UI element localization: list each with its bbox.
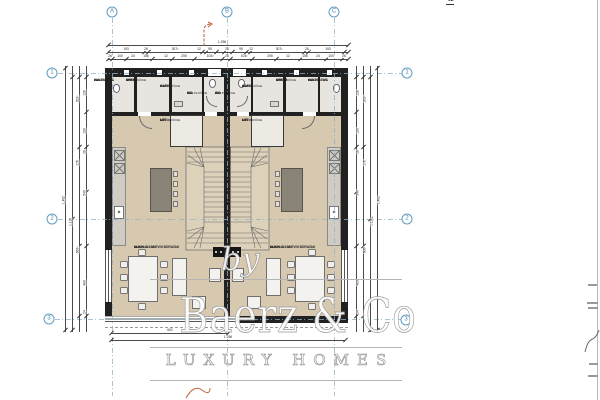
chair <box>287 274 295 281</box>
dimension-label: 12 <box>164 55 169 58</box>
dimension-label: 202² <box>363 95 366 103</box>
title-block-fragment <box>588 375 598 377</box>
sink-icon <box>114 206 124 219</box>
kitchen-counter-left <box>112 147 126 246</box>
dimension-label: 193 <box>325 48 332 51</box>
cooktop-icon <box>114 150 125 161</box>
dimension-label: 480 <box>356 280 359 287</box>
chair <box>120 287 128 294</box>
dimension-label: 104² <box>206 55 214 58</box>
title-block-fragment <box>587 302 598 304</box>
chair <box>160 274 168 281</box>
watermark-brand: Baerz & Co <box>175 288 421 344</box>
toilet-icon <box>113 84 120 93</box>
dim-line <box>86 66 87 332</box>
dimension-label: 12 <box>249 48 254 51</box>
grid-marker: 2 <box>402 214 413 225</box>
bar-stool <box>173 201 178 207</box>
dimension-label: 156 <box>302 55 309 58</box>
partition <box>251 77 254 112</box>
dimension-label: 128 <box>356 90 359 97</box>
dimension-label: 100 <box>328 55 335 58</box>
grid-marker: 1 <box>47 68 58 79</box>
dimension-label: 24 <box>131 55 136 58</box>
watermark-tagline: LUXURY HOMES <box>150 351 402 369</box>
dimension-label: 26 <box>356 150 359 155</box>
dimension-label: 600² <box>363 246 366 254</box>
bar-stool <box>173 181 178 187</box>
wardrobe-icon <box>270 101 279 107</box>
grid-marker: 1 <box>402 68 413 79</box>
dimension-label: 480 <box>83 280 86 287</box>
watermark-rule <box>150 279 402 280</box>
floor-plan-sheet: ABC 123 123 1.29619326307²1295269512307²… <box>0 0 600 400</box>
chair <box>120 274 128 281</box>
chair <box>138 303 146 310</box>
revision-mark-bottom <box>184 382 210 400</box>
dim-tick <box>346 43 351 48</box>
dimension-label: 307² <box>171 48 179 51</box>
door-gap <box>205 112 217 116</box>
watermark-by: by <box>221 240 260 278</box>
dimension-label: 190 <box>83 128 86 135</box>
bar-stool <box>275 201 280 207</box>
dimension-label: 26 <box>225 55 230 58</box>
dimension-label: 205 <box>267 55 274 58</box>
dimension-label: 205 <box>181 55 188 58</box>
dimension-label: 12 <box>286 55 291 58</box>
title-block-fragment <box>588 284 597 286</box>
dimension-label: 1.116 <box>69 217 72 226</box>
dimension-label: 307² <box>275 48 283 51</box>
dimension-label: 26 <box>342 55 347 58</box>
dimension-label: 95 <box>239 48 244 51</box>
title-block-fragment <box>588 307 598 309</box>
title-block-fragment <box>589 363 598 365</box>
door-gap <box>237 112 249 116</box>
kitchen-island-left <box>150 168 172 212</box>
grid-axis-line-2 <box>58 219 402 220</box>
dimension-label: 1.462 <box>62 195 65 204</box>
dimension-label: 26 <box>83 150 86 155</box>
dimension-label: 176 <box>363 160 366 167</box>
dimension-label: 1.296 <box>217 41 226 44</box>
dimension-label: 104² <box>240 55 248 58</box>
dimension-label: 602 <box>167 329 174 332</box>
grid-marker: A <box>107 7 118 18</box>
dimension-label: 193 <box>123 48 130 51</box>
dim-line <box>72 66 73 332</box>
dimension-label: 24 <box>83 310 86 315</box>
dimension-label: 1.462 <box>377 195 380 204</box>
dimension-label: 26 <box>144 48 149 51</box>
dimension-label: 540 <box>83 190 86 197</box>
watermark-rule <box>150 347 402 348</box>
bar-stool <box>275 181 280 187</box>
dimension-label: 128 <box>83 90 86 97</box>
toilet-icon <box>209 79 216 88</box>
dimension-label: 156 <box>143 55 150 58</box>
watermark-rule <box>150 380 402 381</box>
bar-stool <box>275 171 280 177</box>
grid-axis-line-1 <box>58 73 402 74</box>
coffee-table-left <box>209 268 221 282</box>
kitchen-island-right <box>281 168 303 212</box>
signature-stroke <box>583 326 600 354</box>
wardrobe-icon <box>174 101 183 107</box>
dimension-label: 540 <box>356 190 359 197</box>
grid-marker: C <box>329 7 340 18</box>
dimension-label: 100 <box>117 55 124 58</box>
partition <box>169 77 172 112</box>
chair <box>287 261 295 268</box>
dimension-label: 26 <box>305 48 310 51</box>
bar-stool <box>275 191 280 197</box>
chair <box>120 261 128 268</box>
dimension-label: 1.116 <box>370 217 373 226</box>
chair <box>160 261 168 268</box>
oven-icon <box>114 163 125 174</box>
dimension-label: 176 <box>76 160 79 167</box>
grid-marker: B <box>222 7 233 18</box>
dimension-label: 24 <box>316 55 321 58</box>
dimension-label: 600² <box>76 246 79 254</box>
bar-stool <box>173 171 178 177</box>
dimension-label: 202² <box>76 95 79 103</box>
dimension-label: 26 <box>225 48 230 51</box>
chair <box>160 287 168 294</box>
dim-line <box>79 66 80 332</box>
revision-mark-top <box>198 20 218 48</box>
grid-marker: 3 <box>44 314 55 325</box>
dimension-label: 26 <box>108 55 113 58</box>
bar-stool <box>173 191 178 197</box>
table-grandtotal-row: 148.44 m² <box>446 0 584 1</box>
grid-marker: 2 <box>47 214 58 225</box>
window-left <box>105 250 112 302</box>
dimension-label: 190 <box>356 128 359 135</box>
